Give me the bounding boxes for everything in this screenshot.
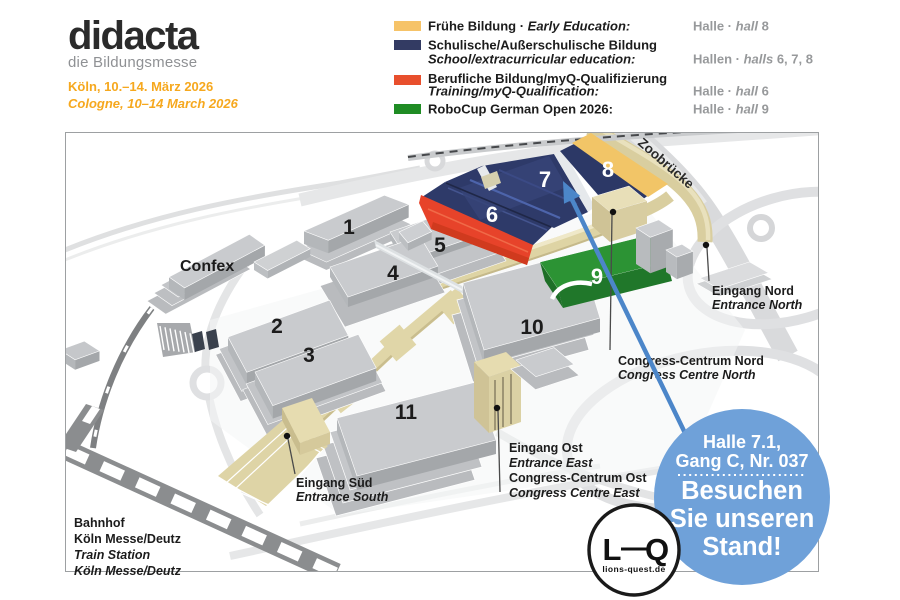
svg-text:7: 7 xyxy=(539,167,551,192)
svg-text:3: 3 xyxy=(303,344,315,367)
svg-text:1: 1 xyxy=(343,216,355,239)
svg-text:Sie unseren: Sie unseren xyxy=(670,505,815,533)
svg-text:Q: Q xyxy=(645,532,669,567)
svg-text:Stand!: Stand! xyxy=(702,533,781,561)
svg-text:Entrance South: Entrance South xyxy=(296,490,389,504)
svg-text:6: 6 xyxy=(486,202,498,227)
svg-text:10: 10 xyxy=(520,316,543,339)
svg-text:5: 5 xyxy=(434,234,446,257)
svg-text:lions-quest.de: lions-quest.de xyxy=(602,564,665,574)
svg-text:Congress-Centrum Nord: Congress-Centrum Nord xyxy=(618,354,764,368)
svg-text:Entrance East: Entrance East xyxy=(509,456,593,470)
svg-text:Eingang Süd: Eingang Süd xyxy=(296,476,372,490)
svg-text:Gang C, Nr. 037: Gang C, Nr. 037 xyxy=(675,451,808,471)
svg-text:Bahnhof: Bahnhof xyxy=(74,516,126,530)
svg-text:L: L xyxy=(603,532,622,567)
svg-text:Köln Messe/Deutz: Köln Messe/Deutz xyxy=(74,532,181,546)
svg-text:Congress Centre North: Congress Centre North xyxy=(618,368,756,382)
svg-text:Congress-Centrum Ost: Congress-Centrum Ost xyxy=(509,471,647,485)
svg-text:Halle 7.1,: Halle 7.1, xyxy=(703,432,781,452)
svg-text:Train Station: Train Station xyxy=(74,548,151,562)
svg-text:8: 8 xyxy=(602,157,614,182)
svg-text:Entrance North: Entrance North xyxy=(712,298,803,312)
svg-text:Eingang Nord: Eingang Nord xyxy=(712,284,794,298)
svg-text:11: 11 xyxy=(395,401,418,424)
svg-text:Besuchen: Besuchen xyxy=(681,477,803,505)
svg-text:9: 9 xyxy=(591,264,603,289)
svg-text:Confex: Confex xyxy=(180,258,234,275)
svg-text:2: 2 xyxy=(271,315,283,338)
svg-text:4: 4 xyxy=(387,262,399,285)
svg-text:Eingang Ost: Eingang Ost xyxy=(509,441,583,455)
svg-text:Congress Centre East: Congress Centre East xyxy=(509,486,640,500)
svg-text:Köln Messe/Deutz: Köln Messe/Deutz xyxy=(74,564,182,578)
